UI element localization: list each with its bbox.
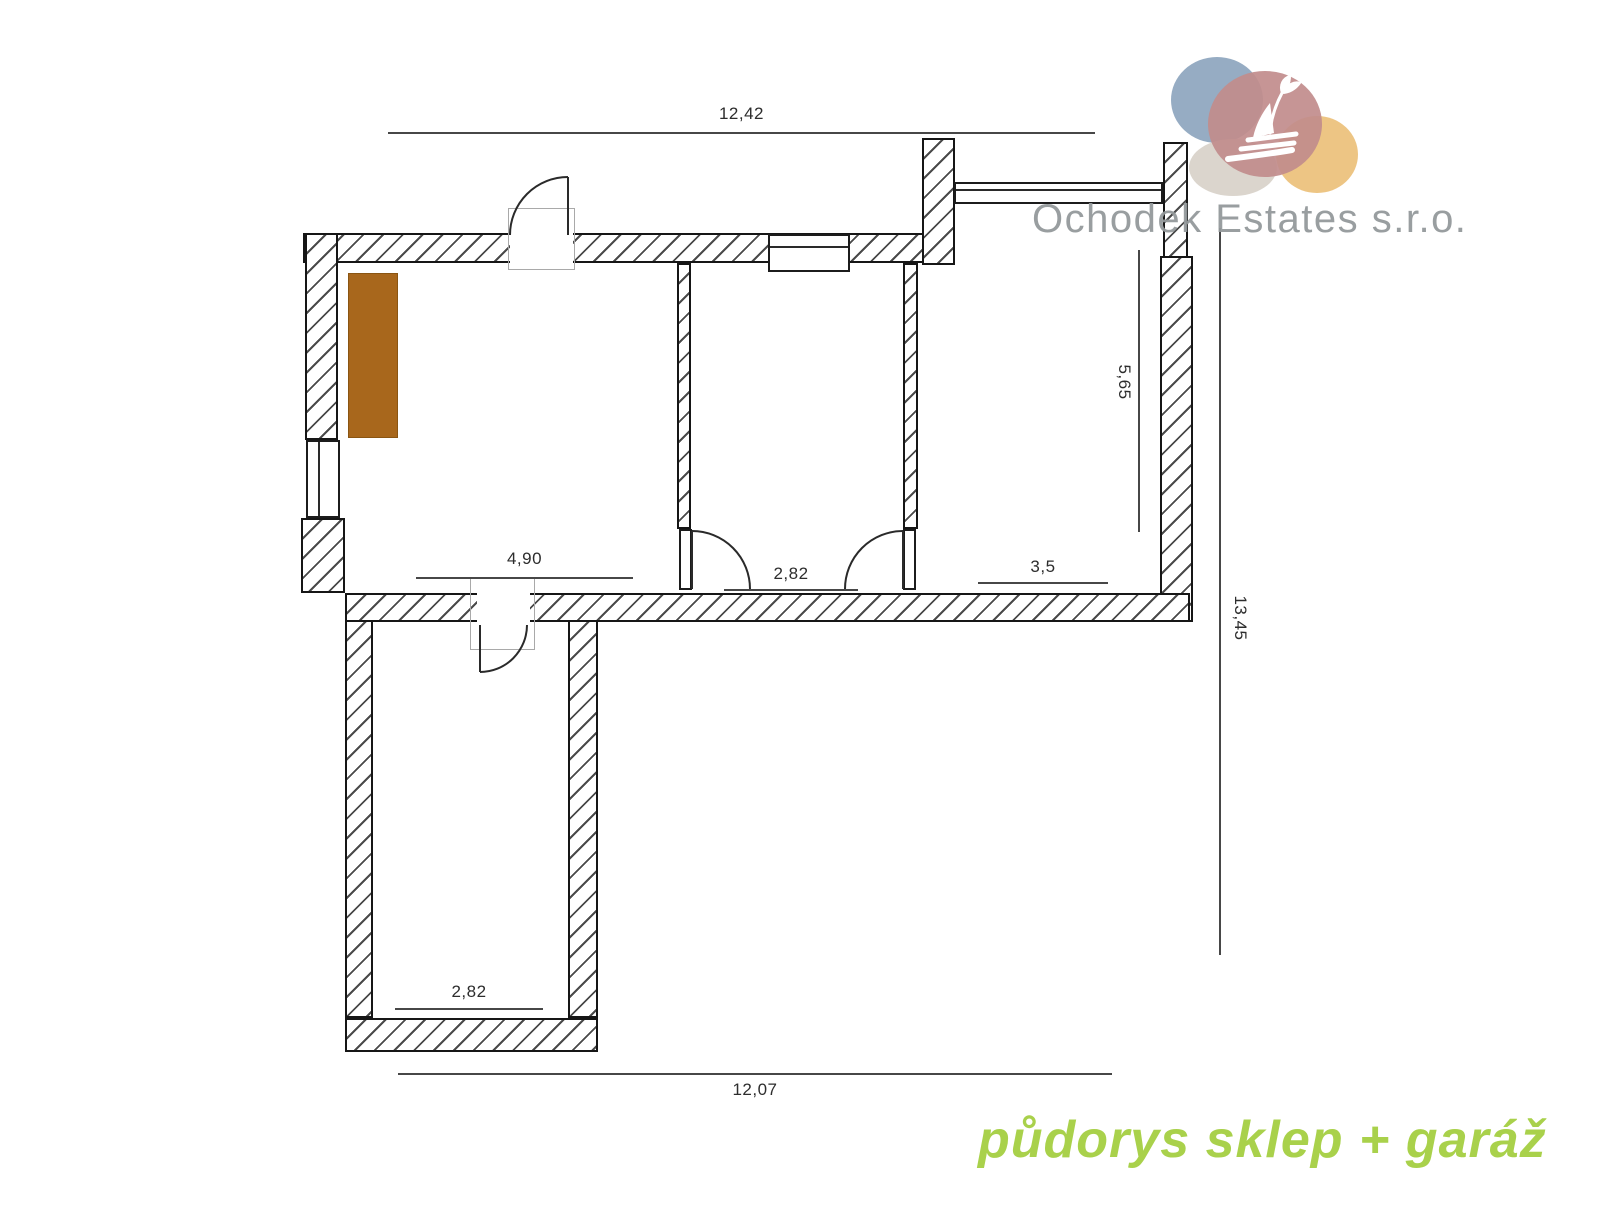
floorplan-canvas: Ochodek Estates s.r.o.	[0, 0, 1600, 1226]
dim-line-top-width	[388, 132, 1095, 134]
dim-label-right-room-width: 3,5	[978, 557, 1108, 577]
dim-line-right-room-height	[1138, 250, 1140, 532]
door-swings-overlay	[0, 0, 1600, 1226]
entrance-door-swing	[510, 177, 568, 235]
dim-label-middle-room-width: 2,82	[724, 564, 858, 584]
dim-line-garage-width	[395, 1008, 543, 1010]
dim-label-overall-height: 13,45	[1230, 588, 1250, 648]
plan-caption: půdorys sklep + garáž	[978, 1110, 1452, 1170]
dim-line-bottom-width	[398, 1073, 1112, 1075]
dim-line-right-room-width	[978, 582, 1108, 584]
dim-label-top-width: 12,42	[388, 104, 1095, 124]
dim-line-left-room-width	[416, 577, 633, 579]
company-name: Ochodek Estates s.r.o.	[1032, 197, 1467, 242]
dim-label-right-room-height: 5,65	[1114, 352, 1134, 412]
dim-line-overall-height	[1219, 228, 1221, 955]
dim-label-garage-width: 2,82	[395, 982, 543, 1002]
dim-label-bottom-width: 12,07	[398, 1080, 1112, 1100]
garage-door-swing	[480, 625, 527, 672]
dim-line-middle-room-width	[724, 589, 858, 591]
dim-label-left-room-width: 4,90	[416, 549, 633, 569]
